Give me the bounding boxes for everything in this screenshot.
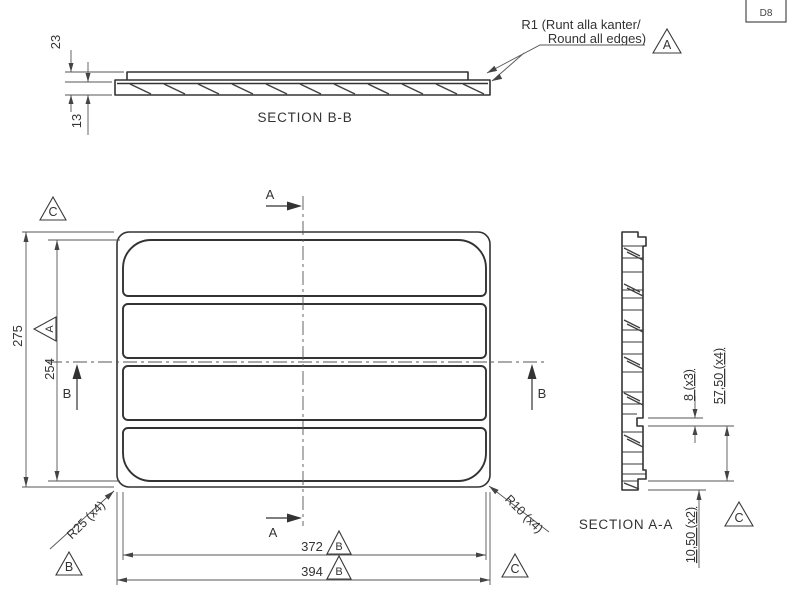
dim-base-thickness: 13: [69, 114, 84, 128]
plan-slot-1: [123, 240, 486, 296]
section-aa-outline: [622, 232, 646, 490]
section-aa-hatch: [624, 248, 643, 489]
drawing-sheet: D8 23 13 SECTION B-B R1 (Runt alla kante…: [0, 0, 790, 600]
dim-inner-width: 372: [301, 539, 323, 554]
section-bb-outline: [115, 72, 490, 95]
r1-note: R1 (Runt alla kanter/ Round all edges) A: [487, 17, 681, 81]
plan-vertical-dim-lines: [22, 232, 120, 487]
plan-outer-outline: [117, 232, 490, 487]
dim-total-thickness: 23: [48, 35, 63, 49]
dim-pitch: 57,50 (x4): [712, 348, 726, 404]
r1-note-line2: Round all edges): [548, 31, 646, 46]
dim-edge: 10,50 (x2): [684, 507, 698, 563]
title-block-code: D8: [760, 8, 773, 19]
section-bb-view: 23 13 SECTION B-B: [48, 35, 490, 135]
section-bb-label: SECTION B-B: [257, 110, 352, 125]
cut-b-label-left: B: [63, 386, 72, 401]
plan-slot-4: [123, 428, 486, 481]
section-bb-hatch: [130, 84, 484, 94]
dim-outer-height: 275: [10, 325, 25, 347]
datum-c-topleft-label: C: [48, 205, 57, 219]
plan-slot-3: [123, 366, 486, 420]
r1-leader: [487, 45, 645, 81]
datum-a-height-label: A: [44, 325, 56, 333]
cut-a-label-bottom: A: [269, 525, 278, 540]
datum-a-note-label: A: [663, 38, 672, 52]
datum-b-bottomleft-label: B: [65, 560, 73, 574]
radius-outer-label: R10 (x4): [502, 492, 546, 536]
section-aa-dim-arrows: [693, 409, 730, 500]
r1-leader-arrows: [487, 66, 502, 81]
title-block-fragment: D8: [746, 0, 786, 22]
section-aa-view: 8 (x3) 57,50 (x4) 10,50 (x2) SECTION A-A…: [579, 232, 753, 568]
datum-b-innerwidth-label: B: [335, 541, 342, 553]
datum-b-outerwidth-label: B: [335, 566, 342, 578]
radius-inner-label: R25 (x4): [64, 498, 108, 542]
r1-note-line1: R1 (Runt alla kanter/: [521, 17, 641, 32]
dim-outer-width: 394: [301, 564, 323, 579]
dim-slot-depth: 8 (x3): [682, 369, 696, 401]
engineering-drawing: D8 23 13 SECTION B-B R1 (Runt alla kante…: [0, 0, 790, 600]
dim-inner-height: 254: [42, 358, 57, 380]
cut-b-label-right: B: [538, 386, 547, 401]
plan-slot-2: [123, 304, 486, 358]
radius-leader-arrows: [105, 486, 499, 500]
section-aa-label: SECTION A-A: [579, 517, 673, 532]
datum-c-right-label: C: [734, 511, 743, 525]
section-bb-dim-arrows: [69, 63, 91, 104]
cut-a-label-top: A: [266, 187, 275, 202]
datum-c-bottomright-label: C: [510, 562, 519, 576]
plan-view: A A B B C 275 254 A R25 (x4) R10 (x4) B …: [10, 187, 549, 585]
